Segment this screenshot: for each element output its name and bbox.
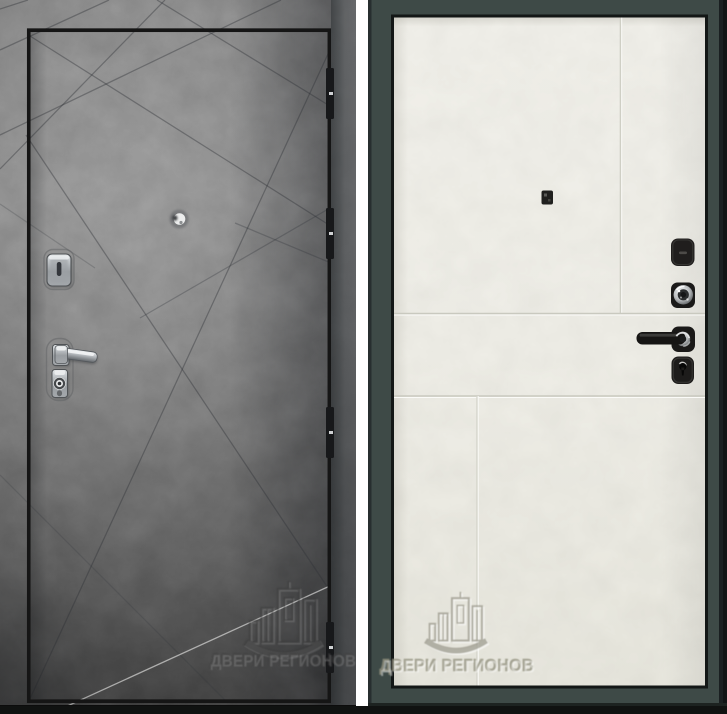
svg-text:ДВЕРИ РЕГИОНОВ: ДВЕРИ РЕГИОНОВ	[211, 653, 357, 671]
svg-text:ДВЕРИ РЕГИОНОВ: ДВЕРИ РЕГИОНОВ	[381, 657, 535, 677]
